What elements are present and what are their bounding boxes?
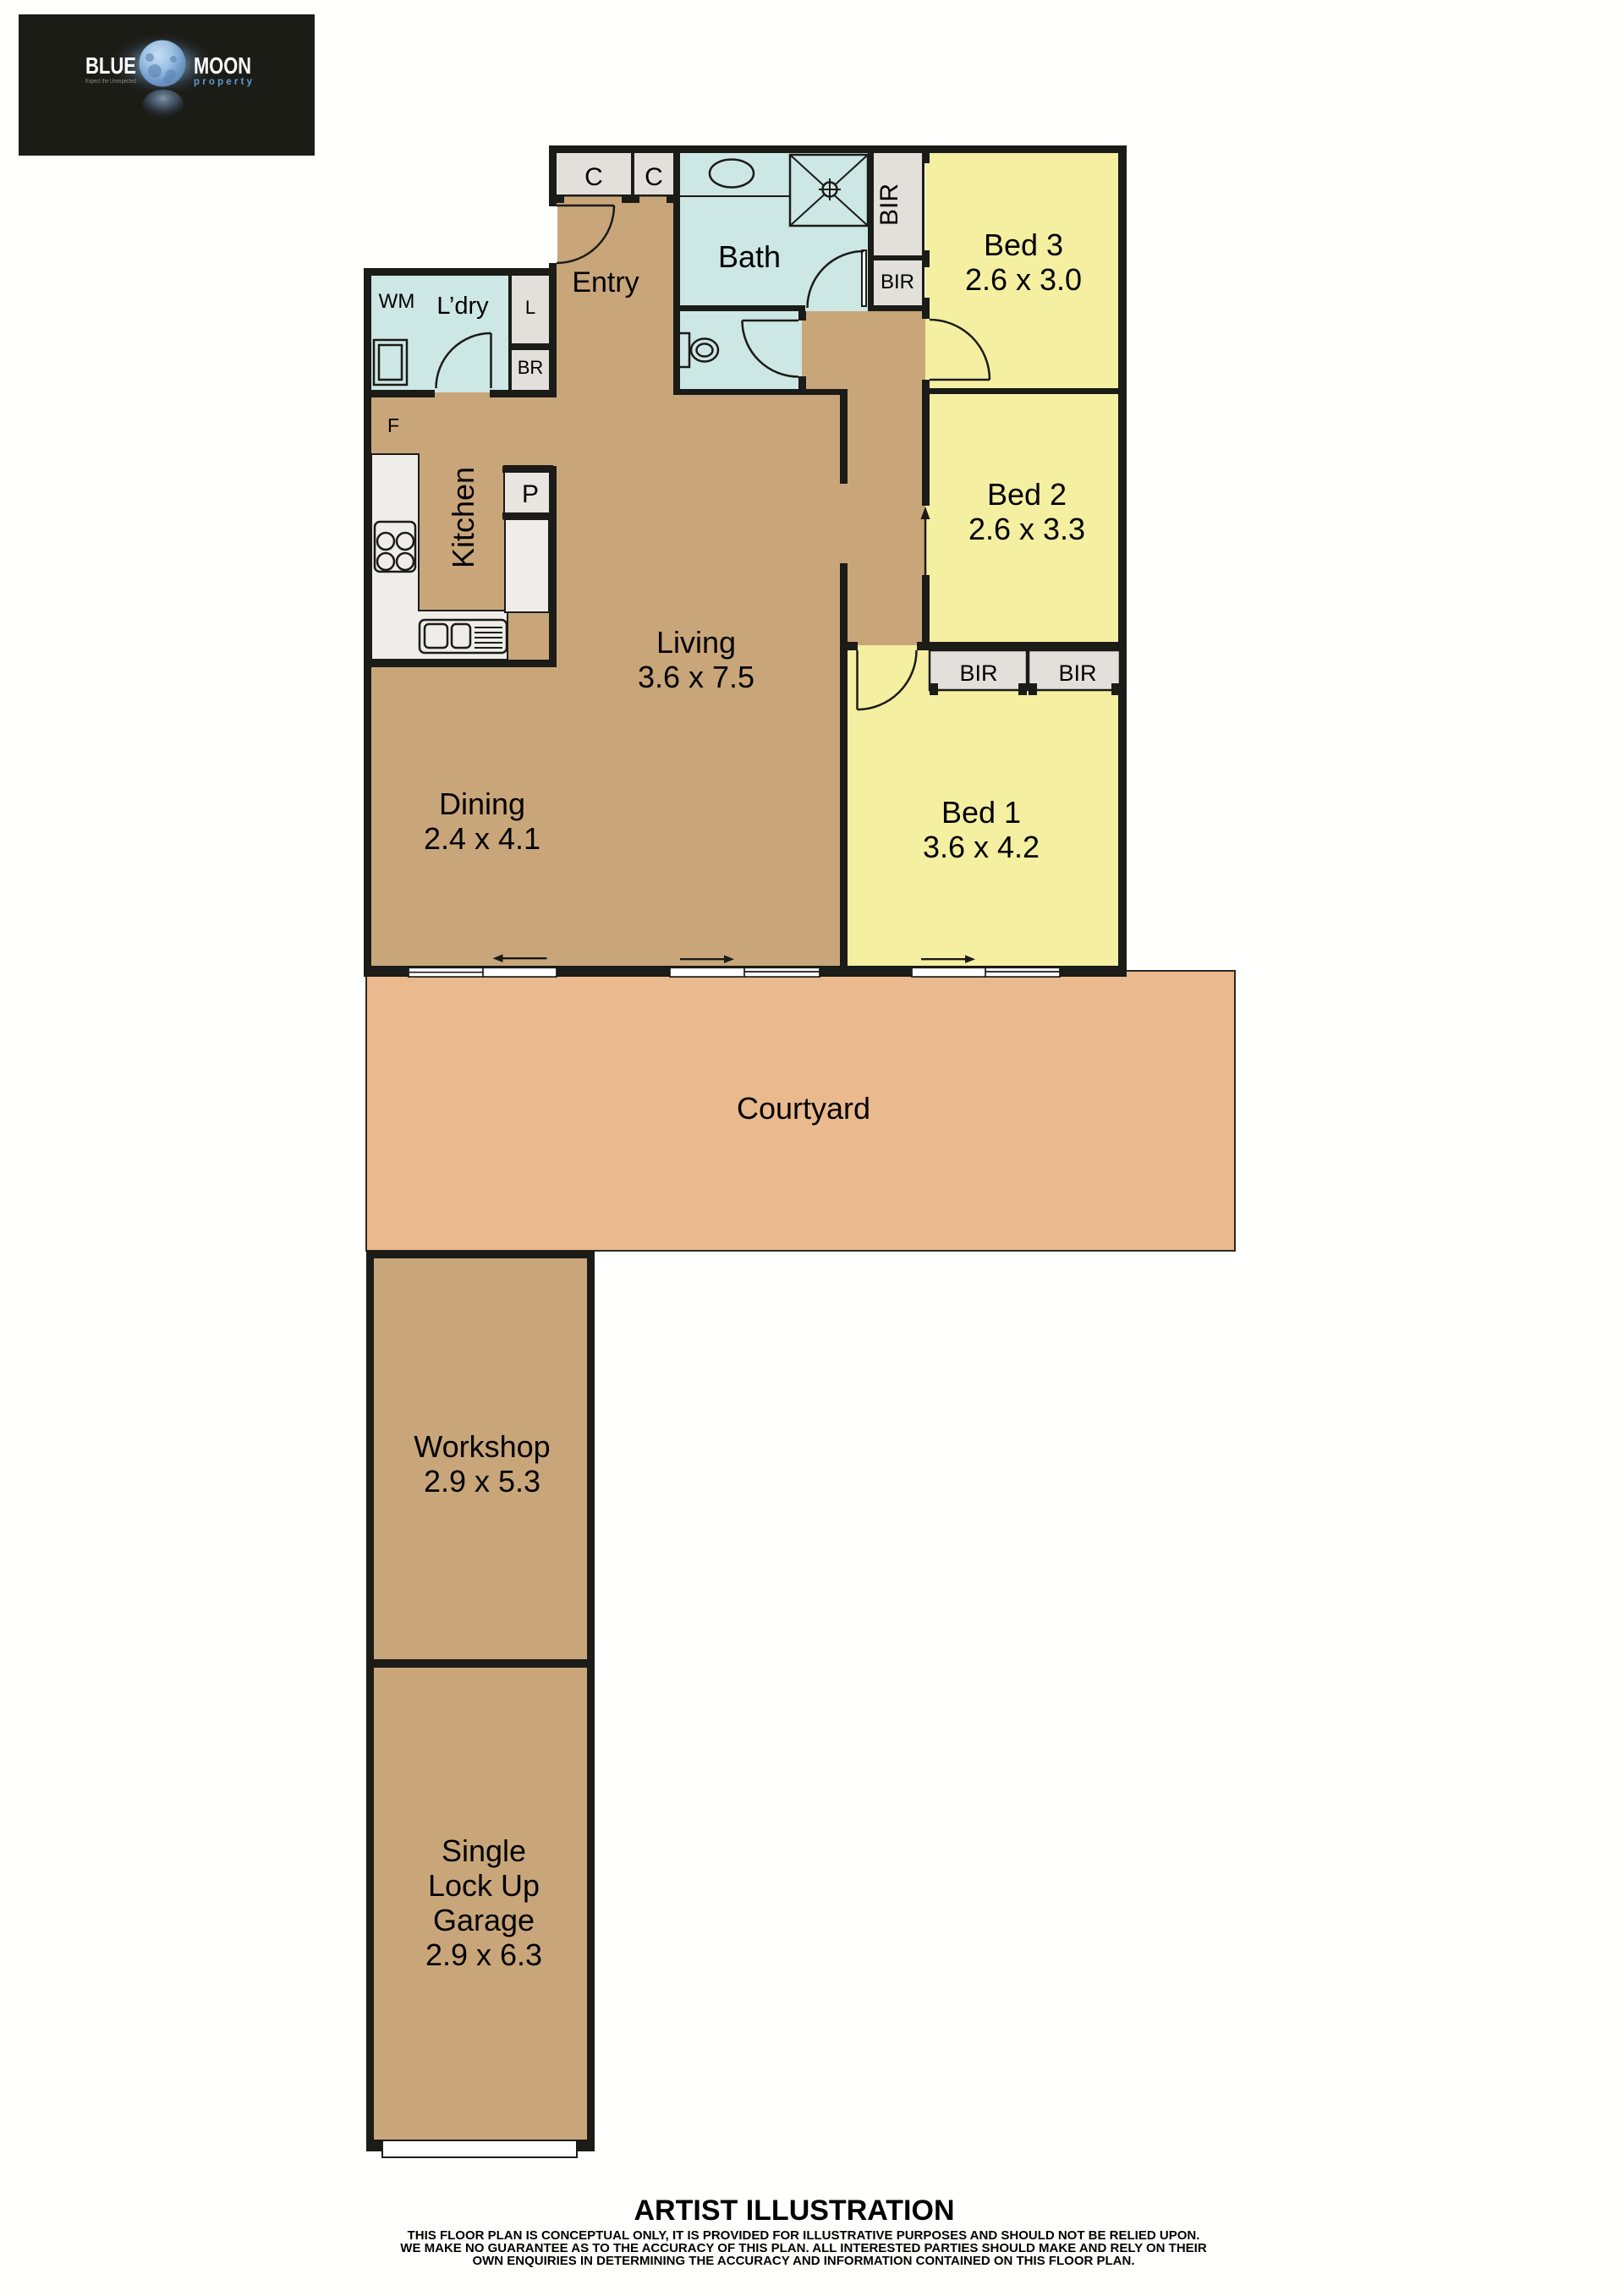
svg-text:2.4 x 4.1: 2.4 x 4.1 [424,821,540,856]
svg-text:BIR: BIR [881,271,914,293]
svg-text:BIR: BIR [959,660,997,686]
svg-text:L’dry: L’dry [436,293,489,320]
svg-text:BR: BR [518,357,544,378]
svg-text:Lock Up: Lock Up [428,1868,540,1903]
svg-text:F: F [387,414,399,436]
svg-text:WM: WM [379,290,415,313]
svg-text:L: L [525,297,535,318]
svg-text:2.6 x 3.3: 2.6 x 3.3 [968,512,1085,546]
svg-text:Garage: Garage [433,1903,535,1937]
svg-text:Single: Single [442,1833,526,1868]
svg-text:C: C [584,163,603,191]
svg-text:MOON: MOON [194,52,251,79]
svg-text:2.9 x 5.3: 2.9 x 5.3 [424,1464,540,1499]
svg-text:2.6 x 3.0: 2.6 x 3.0 [965,262,1082,297]
svg-text:P: P [522,480,539,508]
svg-text:Workshop: Workshop [414,1429,550,1464]
svg-text:Entry: Entry [572,266,639,299]
svg-text:3.6 x 7.5: 3.6 x 7.5 [638,660,754,694]
svg-text:Courtyard: Courtyard [737,1091,870,1126]
svg-text:Living: Living [656,625,736,660]
svg-text:OWN ENQUIRIES IN DETERMINING T: OWN ENQUIRIES IN DETERMINING THE ACCURAC… [472,2254,1134,2268]
svg-text:2.9 x 6.3: 2.9 x 6.3 [425,1937,542,1972]
svg-text:Bed 3: Bed 3 [984,227,1063,262]
svg-text:Expect the Unexpected: Expect the Unexpected [85,79,136,85]
svg-text:BIR: BIR [875,184,903,226]
svg-text:Kitchen: Kitchen [446,467,480,568]
svg-text:3.6 x 4.2: 3.6 x 4.2 [923,830,1040,864]
svg-text:Bed 1: Bed 1 [941,795,1021,830]
svg-text:BIR: BIR [1058,660,1096,686]
svg-text:Bath: Bath [718,239,781,274]
svg-text:ARTIST ILLUSTRATION: ARTIST ILLUSTRATION [634,2195,955,2227]
svg-text:C: C [645,163,663,191]
svg-text:Bed 2: Bed 2 [987,477,1067,512]
svg-text:BLUE: BLUE [85,52,136,79]
svg-text:Dining: Dining [439,786,525,821]
svg-text:property: property [194,77,253,87]
